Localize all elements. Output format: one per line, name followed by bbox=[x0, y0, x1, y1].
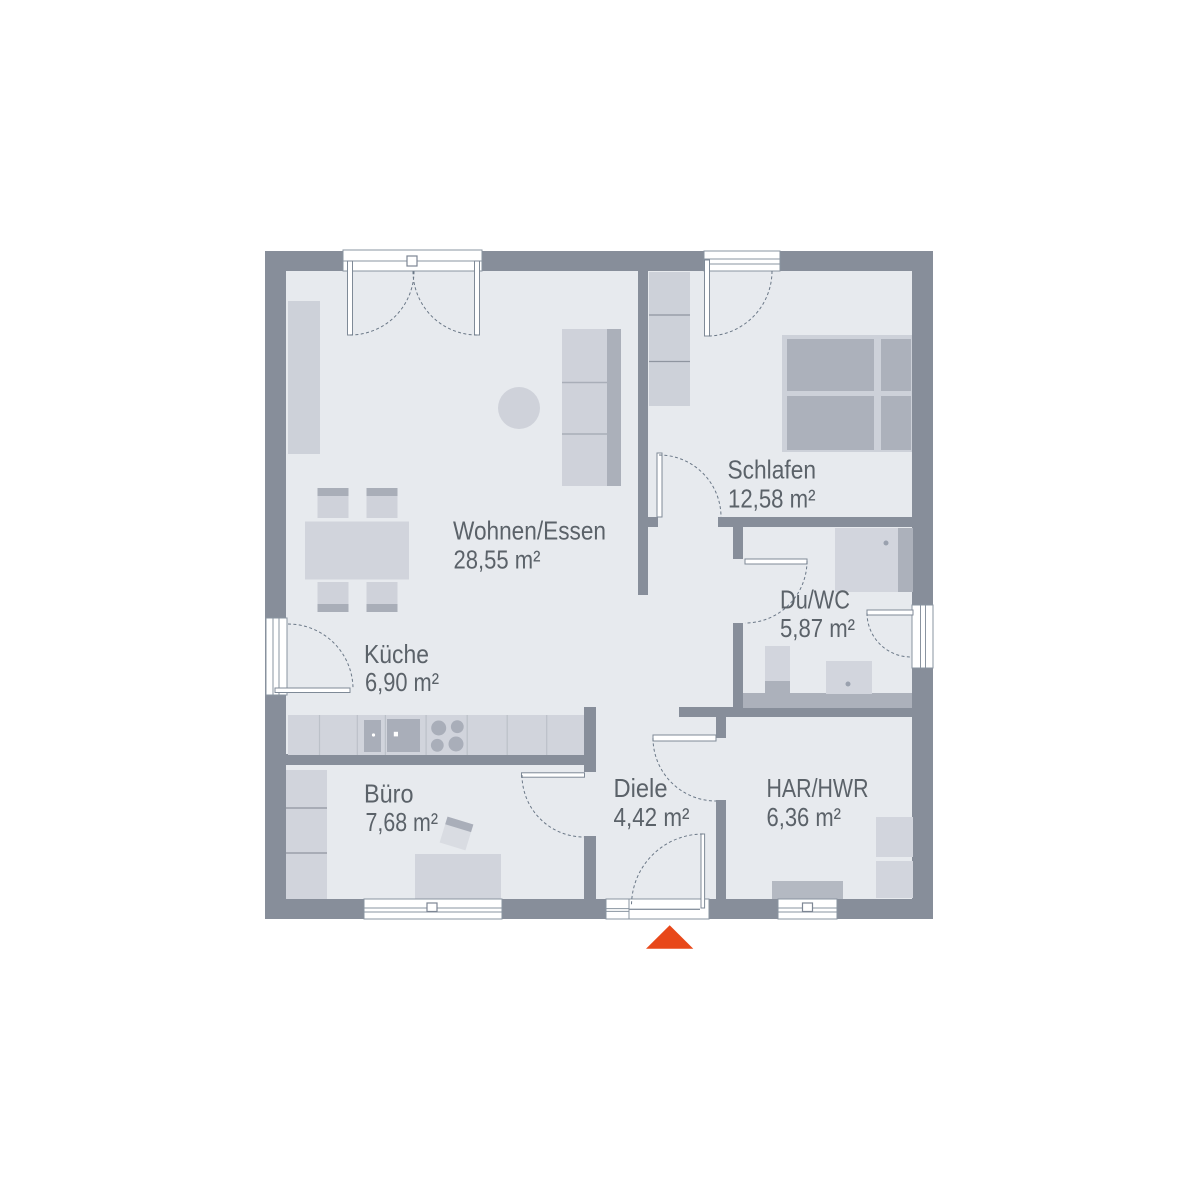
svg-text:Diele: Diele bbox=[614, 773, 668, 803]
svg-text:12,58 m²: 12,58 m² bbox=[728, 484, 816, 514]
svg-text:28,55 m²: 28,55 m² bbox=[454, 545, 541, 575]
svg-text:HAR/HWR: HAR/HWR bbox=[767, 773, 869, 803]
svg-text:6,90 m²: 6,90 m² bbox=[365, 667, 439, 697]
svg-text:4,42 m²: 4,42 m² bbox=[614, 802, 690, 832]
svg-text:Büro: Büro bbox=[364, 779, 414, 809]
svg-text:Küche: Küche bbox=[364, 639, 429, 669]
svg-text:6,36 m²: 6,36 m² bbox=[767, 802, 842, 832]
svg-text:7,68 m²: 7,68 m² bbox=[366, 807, 439, 837]
svg-text:Du/WC: Du/WC bbox=[780, 584, 850, 614]
svg-text:5,87 m²: 5,87 m² bbox=[780, 613, 855, 643]
svg-text:Schlafen: Schlafen bbox=[728, 455, 817, 485]
svg-text:Wohnen/Essen: Wohnen/Essen bbox=[453, 516, 606, 546]
